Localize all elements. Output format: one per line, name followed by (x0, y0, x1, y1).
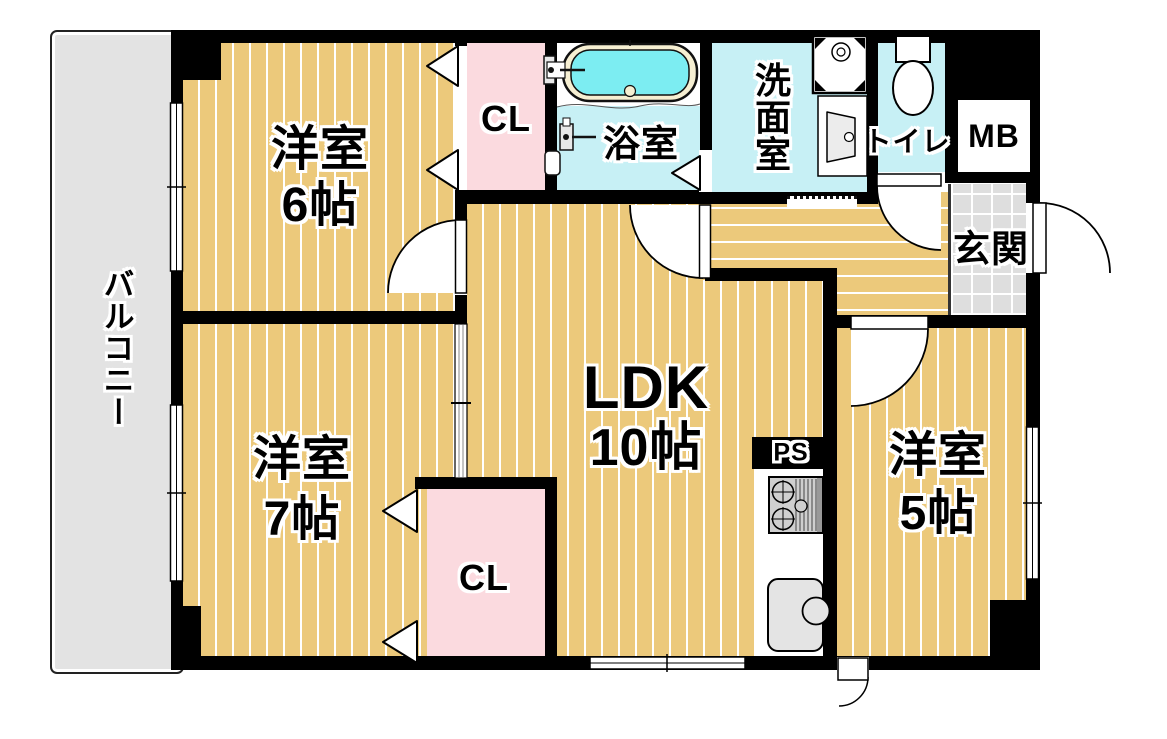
closet-north-opening (455, 46, 467, 190)
bedroom-north-door-opening (455, 220, 467, 295)
wall (545, 477, 557, 656)
toilet-label: トイレ (863, 128, 950, 156)
wall (171, 30, 1040, 43)
ldk-label: LDK (583, 358, 709, 418)
wall (705, 268, 837, 281)
bathroom-door-track (699, 150, 712, 192)
toilet-door-opening (878, 172, 945, 192)
bedroom-southwest-label: 洋室 (253, 436, 351, 484)
balcony-label: バルコニー (101, 268, 132, 428)
bedroom-southwest-size: 7帖 (264, 496, 341, 544)
wall (867, 42, 878, 192)
washroom-label: 洗面室 (752, 62, 788, 173)
bedroom-east-south-opening (837, 657, 869, 670)
wall (455, 190, 712, 204)
wall (415, 477, 557, 489)
meter-box-label: MB (968, 120, 1020, 152)
door-arc-front-door (1033, 203, 1110, 273)
kitchen-counter (755, 467, 823, 656)
wall-pillar (990, 600, 1040, 670)
closet-north-label: CL (481, 101, 531, 137)
washroom-sliding-opening (787, 196, 857, 207)
bedroom-east-size: 5帖 (900, 490, 977, 538)
wall (171, 311, 467, 324)
bathroom-label: 浴室 (603, 126, 679, 163)
ldk-size: 10帖 (590, 422, 703, 474)
wall (545, 42, 557, 190)
bedroom-east-label: 洋室 (889, 432, 987, 480)
floor-plan: バルコニー 洋室 6帖 CL 浴室 洗面室 トイレ MB 玄関 LDK 10帖 … (0, 0, 1167, 739)
bedroom-southwest-floor (183, 324, 455, 656)
pipe-shaft-label: PS (773, 441, 808, 466)
wall (171, 656, 1040, 670)
bedroom-north-label: 洋室 (271, 126, 369, 174)
bedroom-east-door-opening (851, 316, 928, 328)
wall (171, 30, 183, 670)
wall-pillar (171, 606, 201, 670)
closet-south-label: CL (459, 560, 509, 596)
bathroom-tub-area (557, 42, 700, 106)
wall-pillar (171, 30, 221, 80)
bedroom-north-size: 6帖 (282, 182, 359, 230)
entrance-label: 玄関 (953, 231, 1029, 268)
bedroom-north-floor (183, 42, 455, 311)
entrance-step-line (948, 184, 951, 315)
